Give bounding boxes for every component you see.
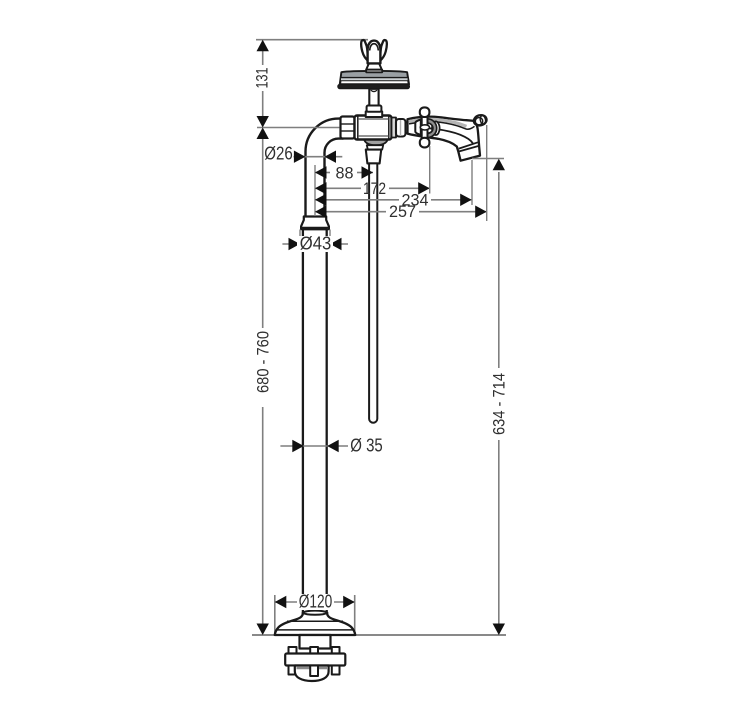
svg-text:Ø 35: Ø 35 [350, 435, 383, 456]
svg-text:172: 172 [363, 179, 386, 198]
svg-text:Ø120: Ø120 [299, 591, 333, 612]
svg-text:257: 257 [389, 202, 416, 221]
svg-text:88: 88 [336, 163, 354, 182]
svg-text:Ø26: Ø26 [264, 143, 293, 164]
svg-text:131: 131 [253, 68, 272, 89]
svg-text:680 - 760: 680 - 760 [254, 331, 273, 393]
svg-text:Ø43: Ø43 [300, 233, 332, 254]
svg-text:634 - 714: 634 - 714 [490, 373, 509, 435]
